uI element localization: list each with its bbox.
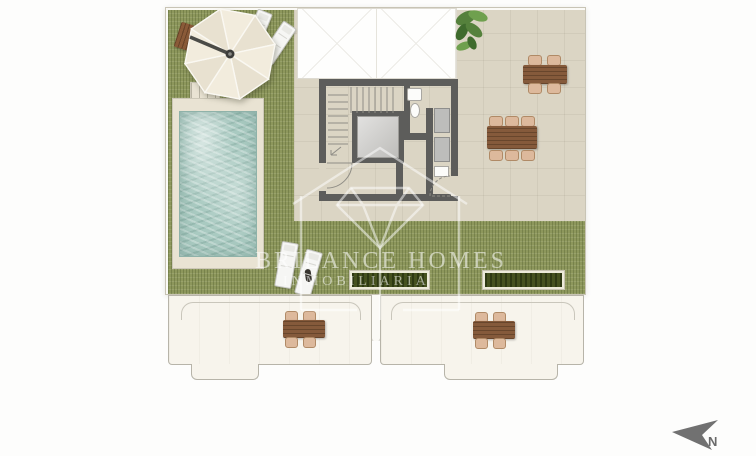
- north-label: N: [708, 434, 717, 449]
- balcony-divider: [371, 295, 381, 341]
- table-top: [473, 321, 515, 339]
- floor-plan-canvas: BRILANCE HOMES INMOBILIARIA N: [0, 0, 756, 456]
- balcony-step-notch: [191, 364, 259, 380]
- chair: [528, 83, 542, 94]
- dining-set-6: [487, 116, 537, 166]
- stair-and-door-linework: [319, 79, 458, 201]
- hedge-planter: [350, 271, 429, 289]
- potted-plant-icon: [452, 7, 492, 58]
- chair: [475, 338, 488, 349]
- parasol-icon: [182, 7, 278, 102]
- table-top: [487, 126, 537, 149]
- hedge-planter: [483, 271, 564, 289]
- skylight-panel: [377, 9, 456, 78]
- chair: [303, 337, 316, 348]
- chair: [489, 150, 503, 161]
- chair: [521, 150, 535, 161]
- dining-set-4: [523, 55, 567, 103]
- towel: [304, 269, 312, 283]
- chair: [493, 338, 506, 349]
- chair: [505, 150, 519, 161]
- main-roof-plate: [165, 7, 586, 295]
- table-top: [523, 65, 567, 84]
- balcony-dining-set: [473, 312, 515, 360]
- table-top: [283, 320, 325, 338]
- chair: [285, 337, 298, 348]
- balcony-step-notch: [444, 364, 558, 380]
- skylight-void: [297, 8, 457, 79]
- balcony-dining-set: [283, 311, 325, 359]
- skylight-panel: [298, 9, 377, 78]
- lower-balcony-left: [168, 295, 372, 365]
- balcony-railing: [181, 302, 361, 320]
- chair: [547, 83, 561, 94]
- swimming-pool: [179, 111, 257, 257]
